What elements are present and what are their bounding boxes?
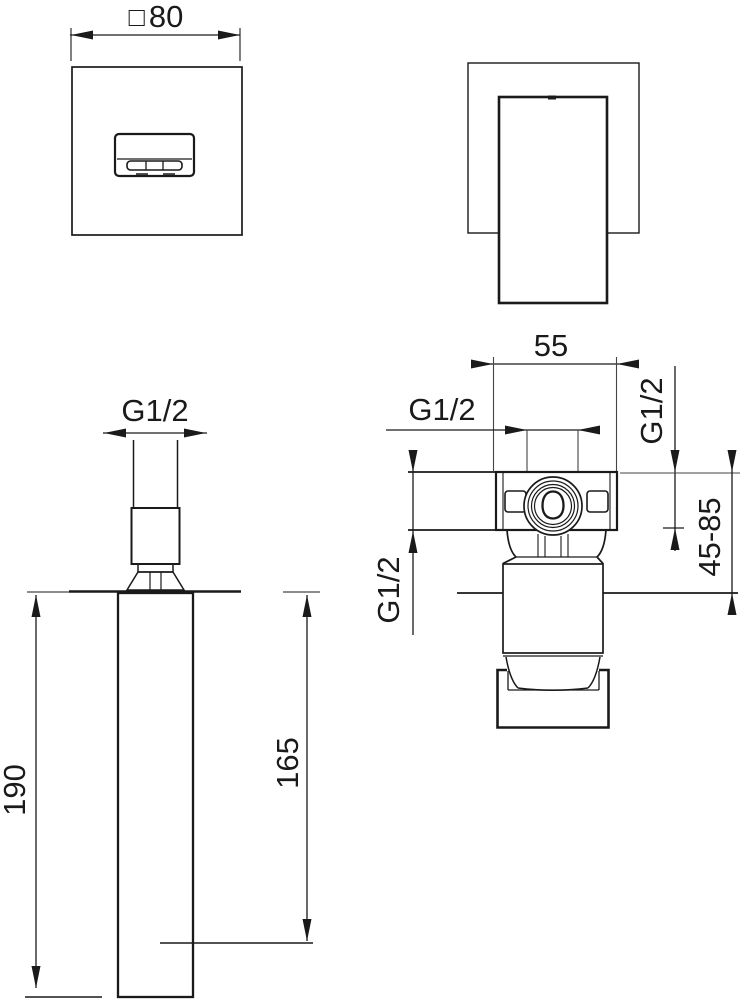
front-view bbox=[70, 28, 242, 235]
side-view bbox=[468, 63, 639, 303]
spout-total-height-label: 190 bbox=[0, 750, 32, 830]
valve-bottom-thread-label: G1/2 bbox=[372, 545, 406, 635]
install-depth-range-label: 45-85 bbox=[693, 482, 727, 592]
spout-thread-label: G1/2 bbox=[111, 394, 199, 428]
valve-top-thread-label: G1/2 bbox=[398, 393, 486, 427]
valve-width-label: 55 bbox=[511, 329, 591, 363]
spout-view bbox=[25, 429, 320, 998]
technical-drawing-page: □80 G1/2 190 165 55 G1/2 G1/2 G1/2 45-85 bbox=[0, 0, 740, 1000]
square-symbol: □ bbox=[129, 2, 145, 32]
spout-projection-label: 165 bbox=[271, 723, 305, 803]
drawing-linework bbox=[0, 0, 740, 1000]
front-width-dimension-label: □80 bbox=[106, 0, 206, 34]
valve-side-thread-label: G1/2 bbox=[635, 366, 669, 456]
front-width-value: 80 bbox=[149, 0, 183, 34]
